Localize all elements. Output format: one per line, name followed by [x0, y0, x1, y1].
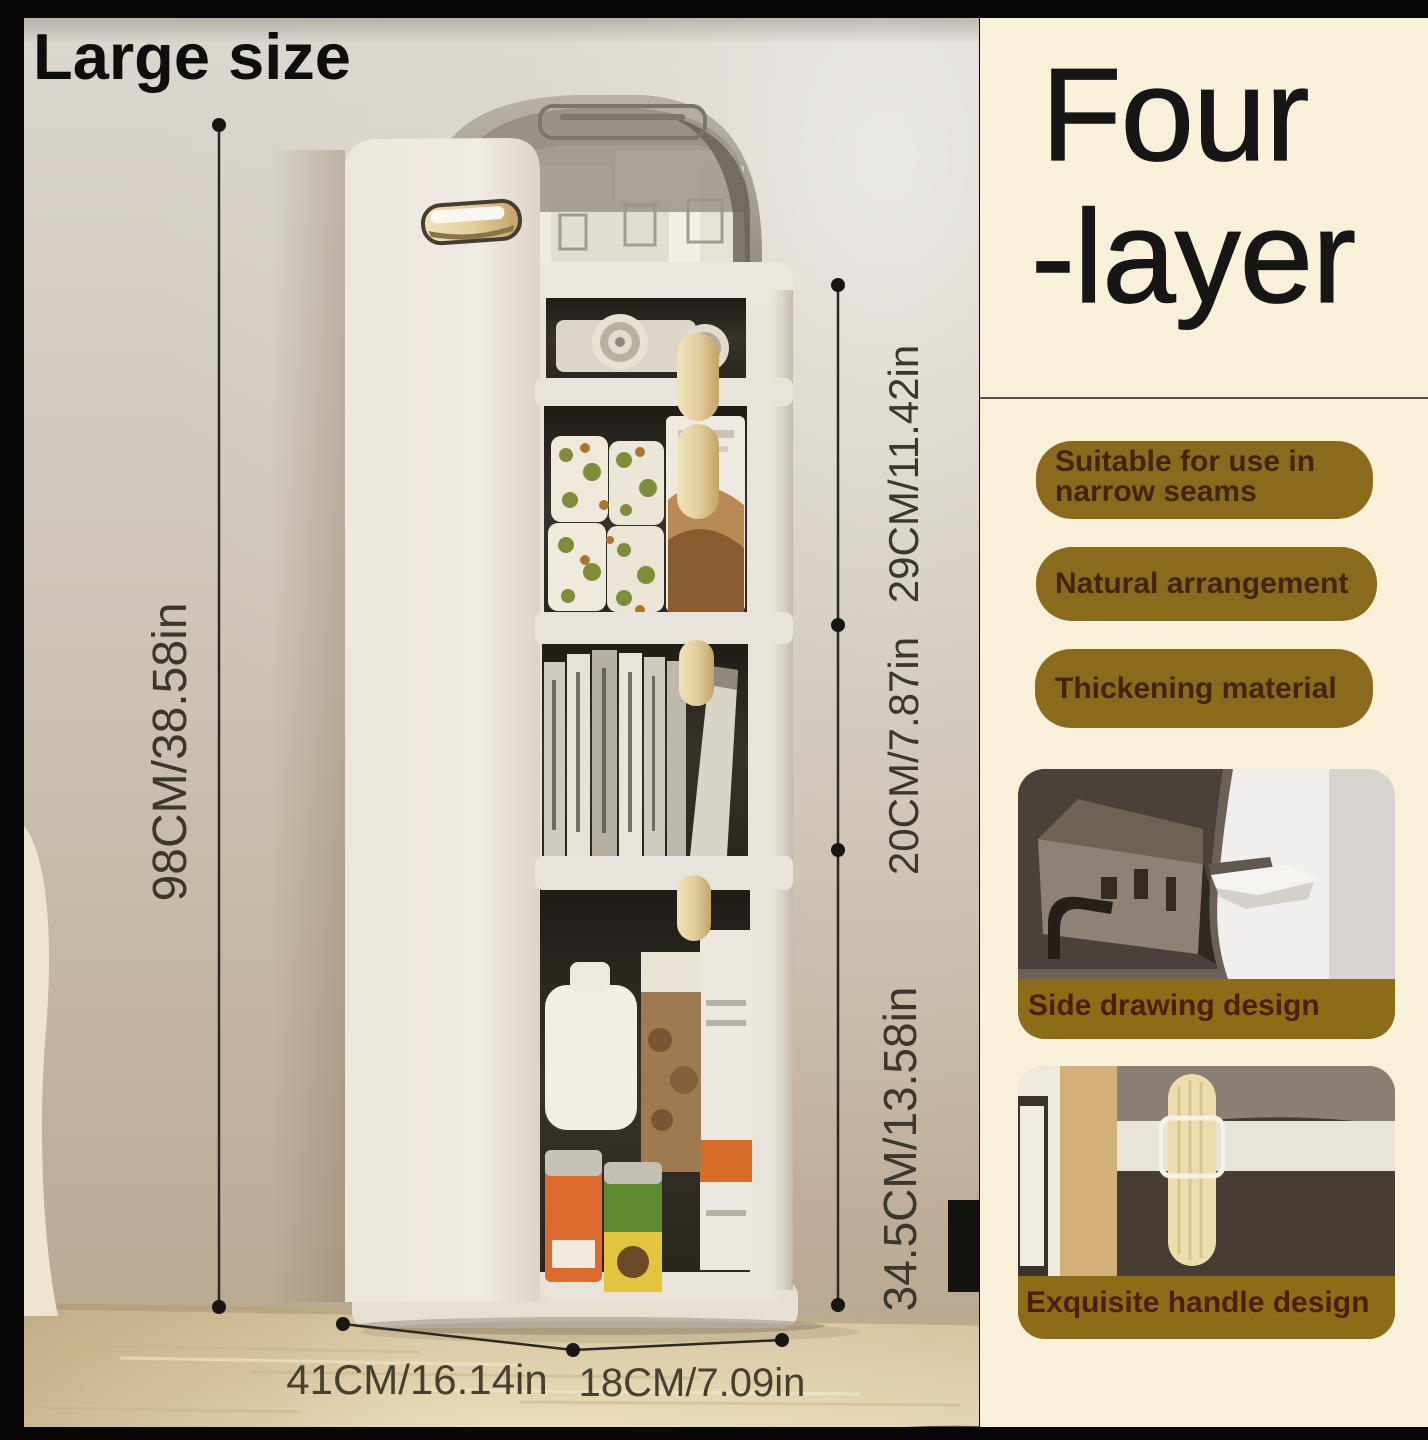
- svg-text:98CM/38.58in: 98CM/38.58in: [144, 603, 197, 902]
- svg-text:20CM/7.87in: 20CM/7.87in: [880, 637, 927, 875]
- svg-text:34.5CM/13.58in: 34.5CM/13.58in: [874, 987, 926, 1312]
- svg-text:18CM/7.09in: 18CM/7.09in: [579, 1361, 806, 1405]
- svg-text:Exquisite handle design: Exquisite handle design: [1026, 1286, 1369, 1319]
- svg-text:29CM/11.42in: 29CM/11.42in: [880, 345, 927, 603]
- svg-text:Side drawing design: Side drawing design: [1028, 989, 1320, 1022]
- svg-text:41CM/16.14in: 41CM/16.14in: [286, 1356, 548, 1403]
